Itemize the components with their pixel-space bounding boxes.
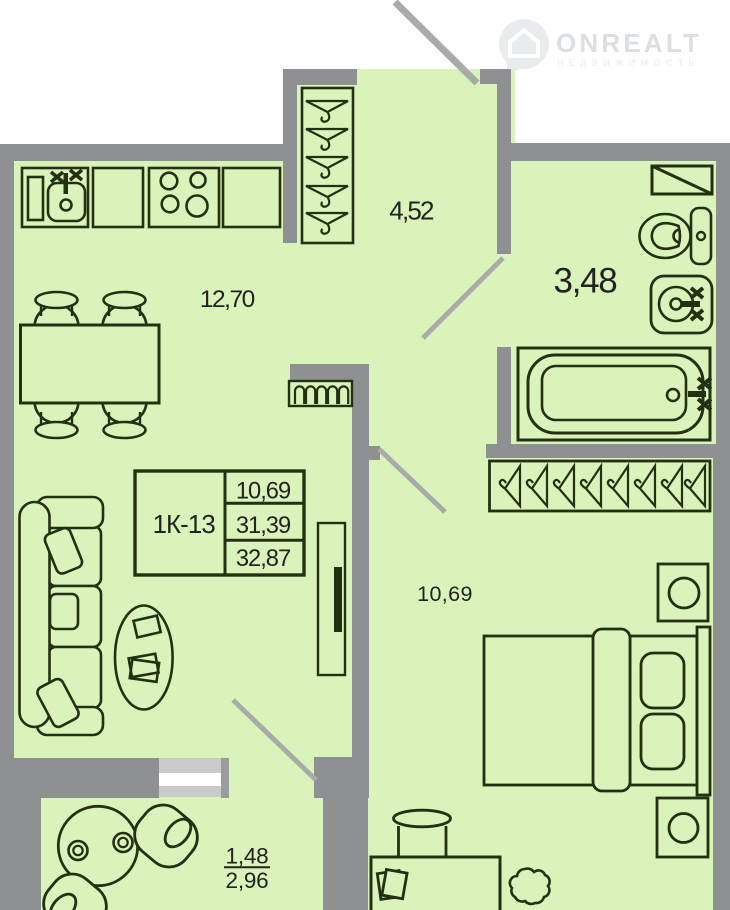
svg-text:1К-13: 1К-13 [153, 511, 216, 539]
svg-text:4,52: 4,52 [389, 196, 434, 226]
svg-text:10,69: 10,69 [236, 478, 291, 504]
svg-text:10,69: 10,69 [417, 582, 473, 606]
svg-text:НЕДВИЖИМОСТЬ: НЕДВИЖИМОСТЬ [557, 58, 700, 68]
svg-text:31,39: 31,39 [236, 513, 291, 539]
svg-text:ONREALT: ONREALT [556, 28, 702, 58]
svg-text:3,48: 3,48 [554, 262, 617, 301]
svg-text:1,48: 1,48 [226, 844, 269, 869]
svg-text:2,96: 2,96 [226, 868, 269, 893]
svg-text:12,70: 12,70 [200, 286, 255, 313]
svg-text:32,87: 32,87 [236, 546, 290, 572]
